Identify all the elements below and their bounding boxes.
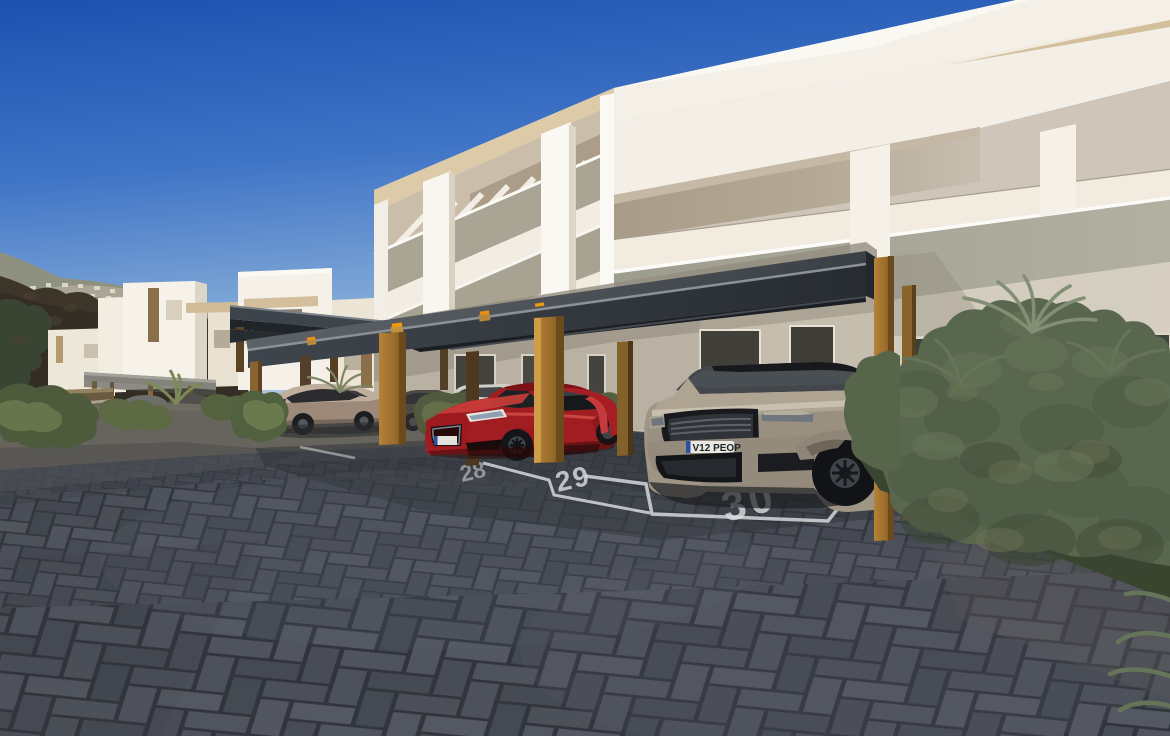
svg-text:V12 PEOP: V12 PEOP [693, 443, 742, 454]
